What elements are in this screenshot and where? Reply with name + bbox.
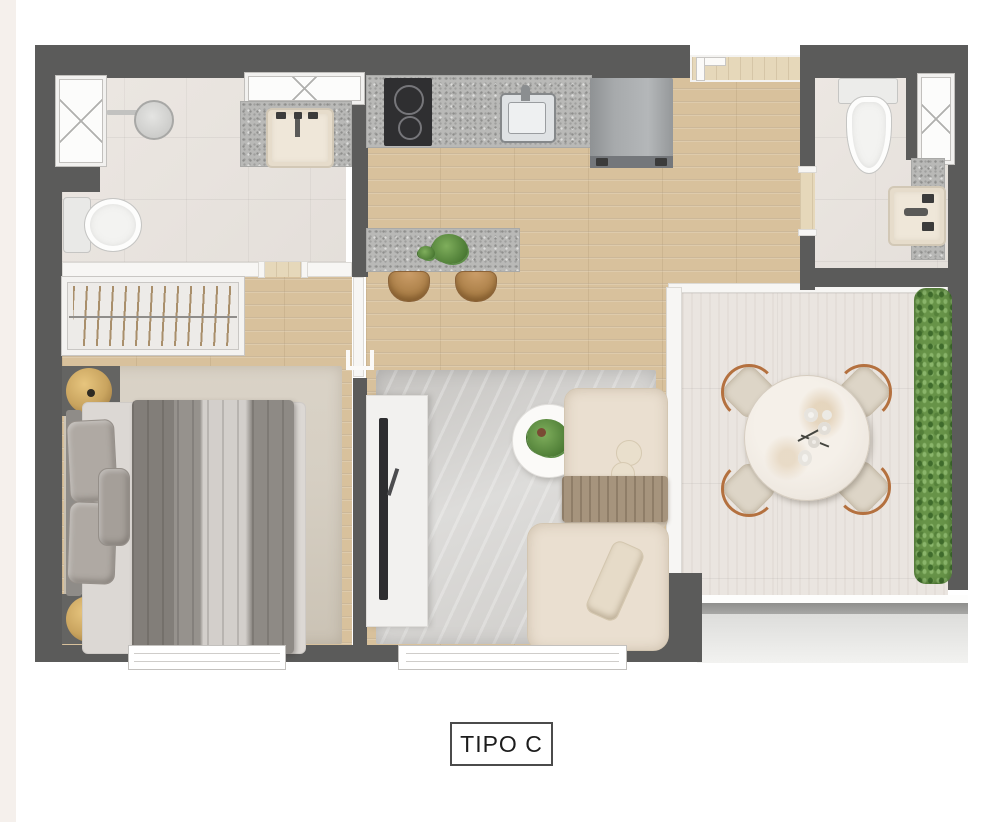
bath2-faucet-handle-bottom — [922, 222, 934, 231]
bath1-faucet-handle-left — [276, 112, 286, 119]
bath2-door-opening — [800, 172, 815, 230]
bed-duvet — [132, 400, 294, 654]
toilet1-bowl — [84, 198, 142, 252]
wall-bath2-bottom — [800, 268, 968, 287]
floor-plan-render: TIPO C — [0, 0, 1000, 822]
bath1-faucet-spout — [294, 112, 302, 119]
flower-5 — [822, 410, 832, 420]
balcony-railing — [697, 603, 968, 614]
bath2-door-jamb-bottom — [798, 229, 817, 236]
cooktop-burner-small — [398, 116, 422, 140]
cooktop-burner-large — [394, 85, 424, 115]
flower-4 — [798, 450, 812, 466]
below-balcony-ledge — [697, 614, 968, 663]
kitchen-faucet — [521, 85, 530, 101]
refrigerator-foot-left — [596, 158, 608, 166]
refrigerator-foot-right — [655, 158, 667, 166]
tv-panel — [366, 395, 428, 627]
bed-pillow-small — [98, 468, 130, 546]
duct-vent — [245, 73, 364, 104]
bath2-faucet-spout — [904, 208, 928, 216]
bath1-faucet-handle-right — [308, 112, 318, 119]
coffee-table-plant — [527, 419, 569, 457]
bath2-faucet-handle-top — [922, 194, 934, 203]
wall-bedroom-living-lower — [353, 378, 367, 645]
bath1-faucet-pipe — [295, 119, 300, 137]
bath1-door-jamb-right — [301, 261, 308, 278]
island-plant — [432, 234, 468, 264]
shower-niche-1 — [56, 76, 106, 166]
wall-bath1-bottom — [62, 262, 352, 277]
refrigerator — [590, 78, 673, 158]
sofa-throw-blanket — [562, 476, 668, 522]
entry-door-symbol — [697, 58, 727, 82]
bath1-door-opening — [264, 262, 302, 277]
plan-label: TIPO C — [460, 731, 543, 758]
plan-label-box: TIPO C — [450, 722, 553, 766]
shower-niche-2 — [918, 74, 954, 164]
island-plant-small — [418, 246, 435, 260]
bedroom-door-pivot-symbol — [346, 350, 374, 370]
kitchen-sink-basin — [508, 102, 546, 134]
bath2-door-jamb-top — [798, 166, 817, 173]
tv-screen — [379, 418, 388, 600]
balcony-vertical-garden — [914, 288, 952, 584]
bedroom-window — [128, 645, 286, 670]
entry-door-leaf-2 — [697, 58, 704, 80]
shower-head — [134, 100, 174, 140]
wardrobe — [62, 277, 244, 355]
flower-3 — [808, 436, 820, 448]
coffee-table-plant-accent — [537, 428, 546, 437]
bath2-sink — [888, 186, 946, 246]
table-flowers — [778, 402, 848, 472]
bath1-door-jamb-left — [258, 261, 265, 278]
flower-1 — [804, 408, 818, 422]
wardrobe-rail — [69, 316, 237, 318]
balcony-edge-white — [697, 595, 968, 603]
living-window — [398, 645, 627, 670]
flower-2 — [818, 422, 831, 435]
page-edge-shade — [0, 0, 16, 822]
